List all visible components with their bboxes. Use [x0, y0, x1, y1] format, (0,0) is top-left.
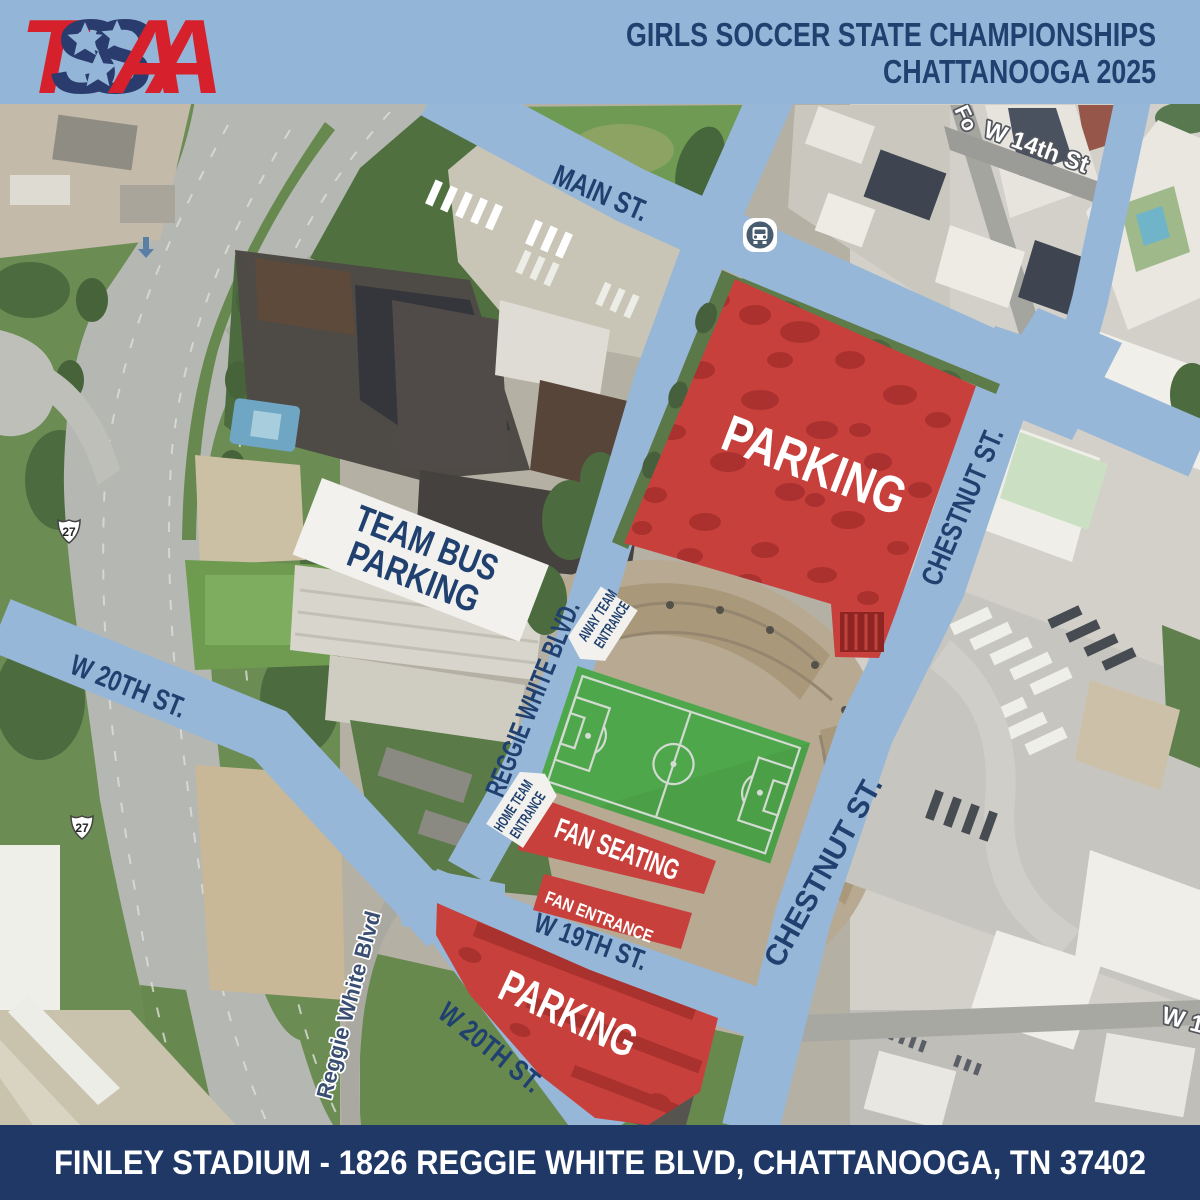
svg-text:FINLEY STADIUM - 1826 REGGIE W: FINLEY STADIUM - 1826 REGGIE WHITE BLVD,…	[54, 1144, 1146, 1182]
svg-text:GIRLS SOCCER STATE CHAMPIONSHI: GIRLS SOCCER STATE CHAMPIONSHIPS	[626, 16, 1156, 53]
svg-text:27: 27	[62, 525, 76, 539]
svg-text:27: 27	[75, 821, 89, 835]
svg-text:CHATTANOOGA 2025: CHATTANOOGA 2025	[883, 53, 1156, 90]
svg-text:A: A	[144, 0, 224, 116]
